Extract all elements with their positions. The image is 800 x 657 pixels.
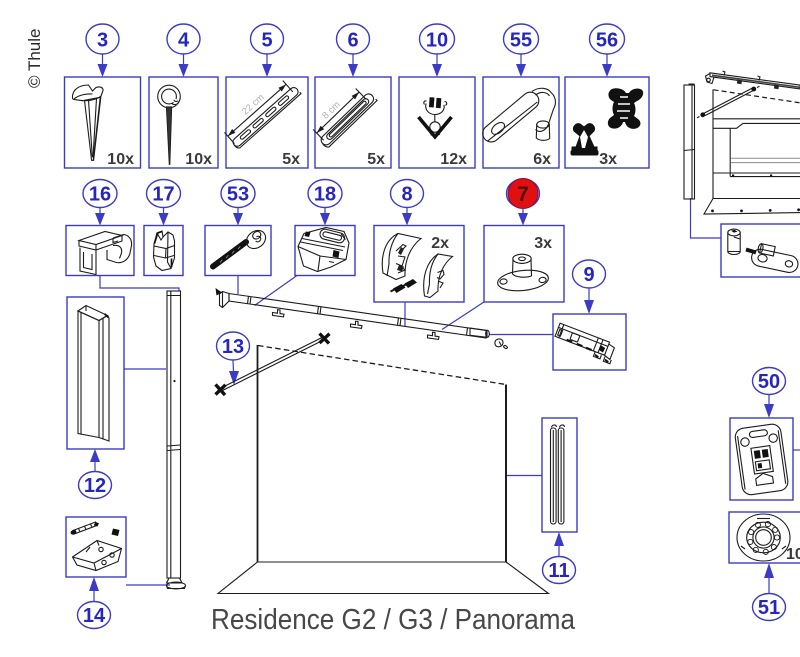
svg-text:Residence G2 / G3 / Panorama: Residence G2 / G3 / Panorama bbox=[211, 604, 576, 636]
svg-text:50: 50 bbox=[758, 371, 780, 393]
svg-text:3x: 3x bbox=[599, 151, 617, 168]
svg-text:6x: 6x bbox=[533, 151, 551, 168]
svg-text:10x: 10x bbox=[786, 546, 800, 563]
svg-text:18: 18 bbox=[314, 184, 336, 206]
svg-text:16: 16 bbox=[89, 184, 111, 206]
svg-text:5: 5 bbox=[261, 30, 272, 52]
svg-text:12: 12 bbox=[84, 475, 106, 497]
svg-text:© Thule: © Thule bbox=[25, 29, 44, 88]
svg-text:53: 53 bbox=[227, 184, 249, 206]
svg-text:10x: 10x bbox=[107, 151, 134, 168]
svg-text:56: 56 bbox=[596, 30, 618, 52]
svg-text:2x: 2x bbox=[431, 235, 449, 252]
svg-text:13: 13 bbox=[222, 336, 244, 358]
svg-text:4: 4 bbox=[178, 30, 190, 52]
svg-text:10: 10 bbox=[426, 30, 448, 52]
svg-text:12x: 12x bbox=[440, 151, 467, 168]
svg-text:11: 11 bbox=[548, 560, 569, 582]
svg-text:6: 6 bbox=[347, 30, 358, 52]
svg-text:9: 9 bbox=[583, 264, 594, 286]
svg-text:17: 17 bbox=[152, 184, 174, 206]
svg-text:8: 8 bbox=[401, 184, 412, 206]
svg-text:14: 14 bbox=[83, 605, 106, 627]
svg-text:3x: 3x bbox=[534, 235, 552, 252]
svg-text:5x: 5x bbox=[367, 151, 385, 168]
svg-text:7: 7 bbox=[517, 183, 529, 206]
svg-text:3: 3 bbox=[97, 30, 108, 52]
svg-text:5x: 5x bbox=[282, 151, 300, 168]
svg-text:55: 55 bbox=[510, 30, 532, 52]
svg-text:10x: 10x bbox=[185, 151, 212, 168]
svg-text:51: 51 bbox=[758, 597, 780, 619]
